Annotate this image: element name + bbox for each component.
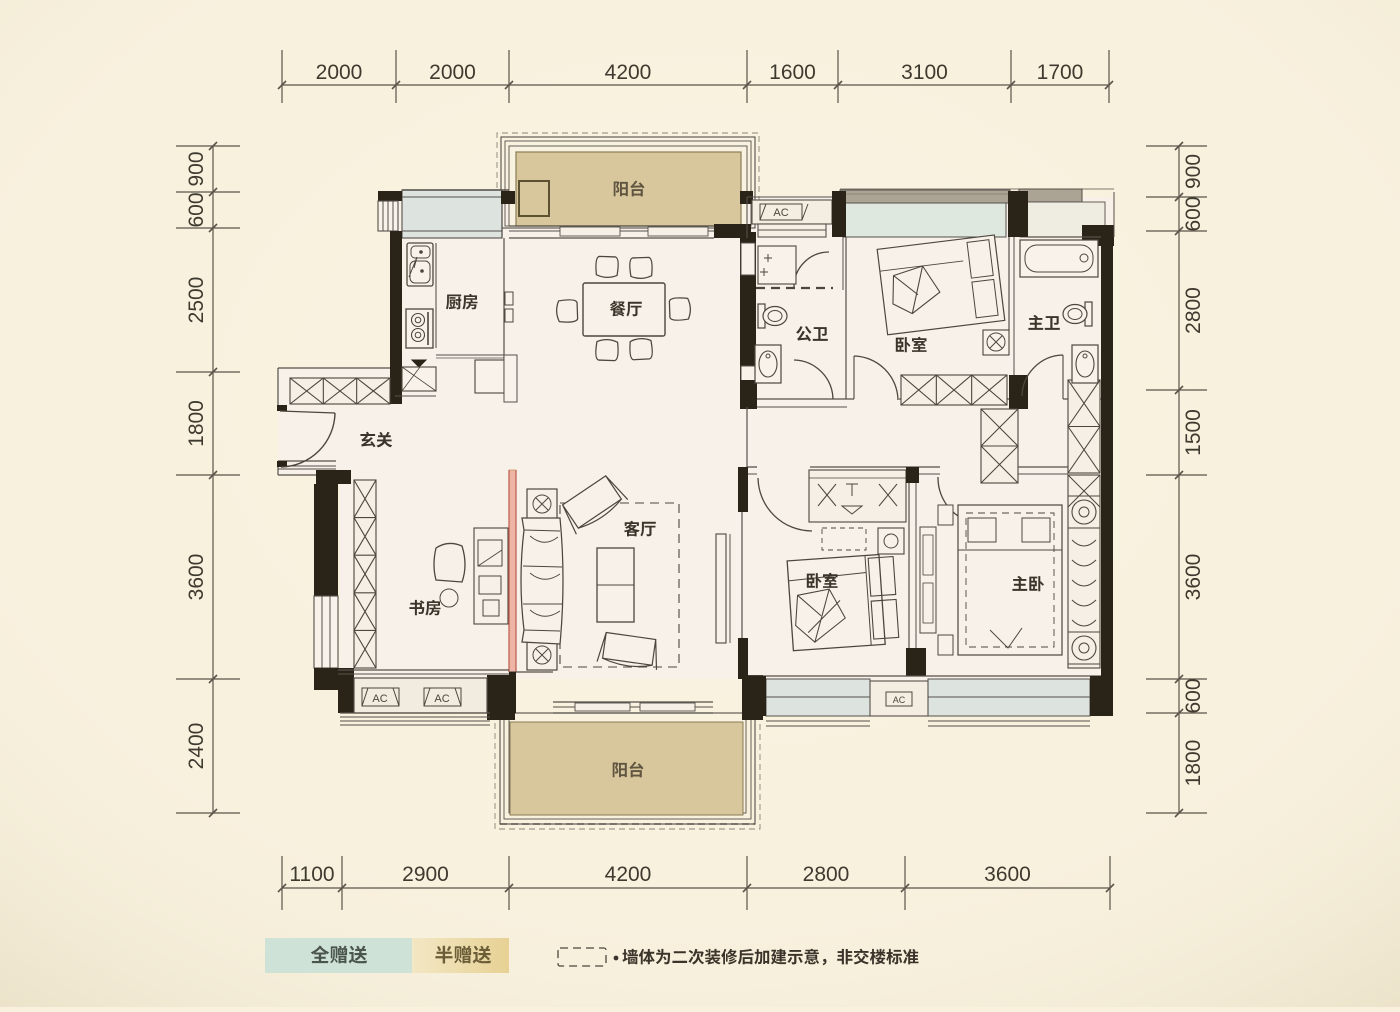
svg-text:4200: 4200 — [605, 863, 652, 886]
svg-text:AC: AC — [434, 693, 449, 705]
svg-text:3100: 3100 — [901, 61, 948, 84]
svg-text:2400: 2400 — [185, 723, 208, 770]
svg-text:3600: 3600 — [984, 863, 1031, 886]
svg-text:AC: AC — [773, 207, 788, 219]
svg-text:1500: 1500 — [1182, 409, 1205, 456]
svg-text:600: 600 — [1182, 196, 1205, 231]
svg-text:4200: 4200 — [605, 61, 652, 84]
svg-text:2000: 2000 — [316, 61, 363, 84]
svg-text:600: 600 — [1182, 678, 1205, 713]
svg-text:1700: 1700 — [1037, 61, 1084, 84]
svg-text:2800: 2800 — [803, 863, 850, 886]
svg-text:1600: 1600 — [769, 61, 816, 84]
svg-text:3600: 3600 — [1182, 554, 1205, 601]
svg-text:1800: 1800 — [1182, 740, 1205, 787]
svg-text:2900: 2900 — [402, 863, 449, 886]
svg-text:2500: 2500 — [185, 277, 208, 324]
svg-text:600: 600 — [185, 192, 208, 227]
svg-text:1100: 1100 — [289, 863, 334, 886]
svg-text:2800: 2800 — [1182, 287, 1205, 334]
svg-text:1800: 1800 — [185, 400, 208, 447]
svg-text:900: 900 — [185, 151, 208, 186]
svg-text:AC: AC — [372, 693, 387, 705]
svg-text:2000: 2000 — [429, 61, 476, 84]
svg-text:AC: AC — [893, 695, 906, 705]
svg-text:900: 900 — [1182, 154, 1205, 189]
svg-text:3600: 3600 — [185, 554, 208, 601]
